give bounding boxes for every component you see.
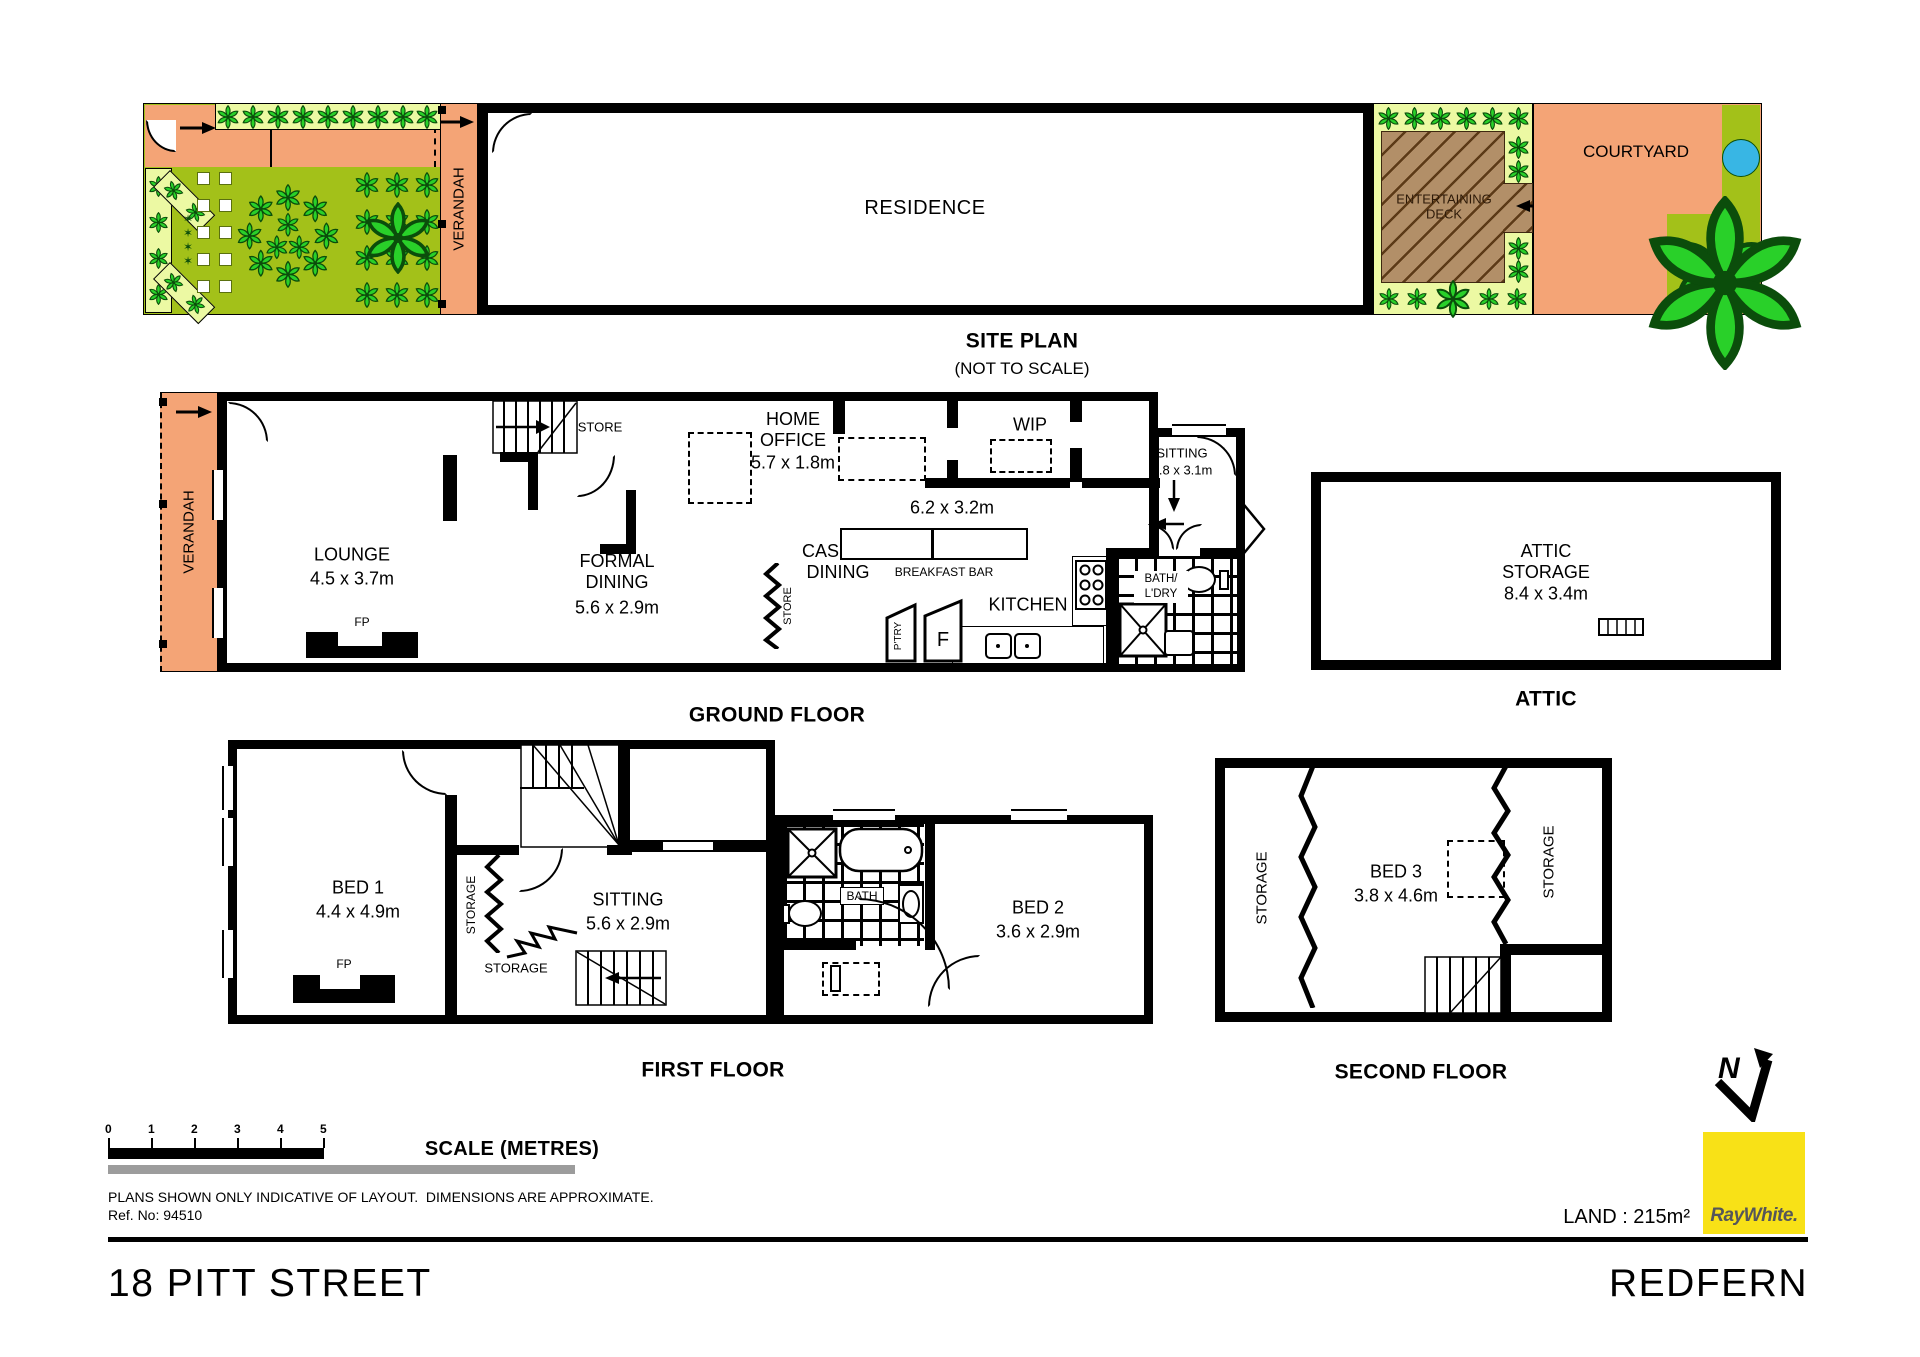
flower-icon xyxy=(1507,160,1530,183)
fireplace-notch xyxy=(338,632,382,646)
storage-label: STORAGE xyxy=(1541,825,1558,898)
verandah-label: VERANDAH xyxy=(451,167,468,250)
window xyxy=(212,588,225,638)
flower-icon xyxy=(1481,107,1504,130)
entry-arrow-icon xyxy=(440,114,474,130)
first-floor-title: FIRST FLOOR xyxy=(641,1059,784,1084)
french-door xyxy=(1238,498,1268,560)
flower-icon xyxy=(1403,107,1426,130)
basin xyxy=(1164,630,1194,656)
fireplace-notch xyxy=(320,975,360,989)
window xyxy=(222,818,235,866)
zigzag-door xyxy=(483,855,505,953)
scale-tick xyxy=(194,1138,196,1148)
flower-icon xyxy=(1507,260,1530,283)
flower-icon xyxy=(414,172,440,198)
wall xyxy=(445,795,457,1024)
flower-icon xyxy=(1377,107,1400,130)
furniture-outline xyxy=(1447,840,1505,898)
storage-label: STORAGE xyxy=(484,960,547,975)
kitchen-label: KITCHEN xyxy=(988,594,1067,615)
verandah-label: VERANDAH xyxy=(181,490,198,573)
flower-icon xyxy=(366,105,390,129)
scale-bar xyxy=(108,1148,324,1159)
path-arrow-icon xyxy=(1152,516,1184,532)
planter-strip xyxy=(215,103,441,130)
staircase xyxy=(1424,956,1502,1014)
site-plan-title: SITE PLAN xyxy=(966,330,1078,355)
furniture-outline xyxy=(688,432,752,504)
furniture-outline xyxy=(990,439,1052,473)
raywhite-logo-text: RayWhite. xyxy=(1703,1205,1805,1227)
formal-dining-label: FORMAL DINING xyxy=(567,551,667,593)
flower-wreath xyxy=(232,180,344,292)
attic-storage-label: ATTIC STORAGE xyxy=(1486,541,1606,583)
flower-icon xyxy=(1455,107,1478,130)
flower-icon xyxy=(415,105,439,129)
zigzag-wall xyxy=(1297,766,1319,1008)
floor-plan-page: ✶✶✶✶ VERANDAH RESIDENCE xyxy=(0,0,1920,1357)
ground-floor-title: GROUND FLOOR xyxy=(689,704,865,729)
flower-icon xyxy=(341,105,365,129)
flower-icon xyxy=(384,172,410,198)
toilet-tank xyxy=(782,904,790,924)
post xyxy=(438,106,446,114)
divider xyxy=(108,1165,575,1174)
bed3-label: BED 3 xyxy=(1370,861,1422,882)
wall xyxy=(1106,548,1116,666)
wall xyxy=(925,478,1070,488)
bed2-label: BED 2 xyxy=(1012,897,1064,918)
flower-icon xyxy=(1478,288,1500,310)
flower-icon xyxy=(384,282,410,308)
appliance xyxy=(830,965,841,992)
wall xyxy=(784,940,856,950)
shower xyxy=(1118,602,1168,658)
breakfast-bar xyxy=(840,528,1028,560)
flower-icon xyxy=(1429,107,1452,130)
suburb: REDFERN xyxy=(1400,1262,1808,1306)
post xyxy=(159,640,167,648)
bed2-dims: 3.6 x 2.9m xyxy=(996,921,1080,942)
wall xyxy=(1200,548,1237,558)
bed1-label: BED 1 xyxy=(332,877,384,898)
store-label: STORE xyxy=(578,419,623,434)
bathtub xyxy=(838,827,924,873)
wall xyxy=(947,396,958,428)
raywhite-logo: RayWhite. xyxy=(1703,1132,1805,1234)
scale-tick-label: 4 xyxy=(277,1122,284,1136)
wall xyxy=(1070,448,1082,482)
window xyxy=(833,809,895,822)
home-office-dims: 5.7 x 1.8m xyxy=(751,452,835,473)
window xyxy=(212,470,225,520)
attic-storage-dims: 8.4 x 3.4m xyxy=(1504,583,1588,604)
scale-tick xyxy=(151,1138,153,1148)
flower-icon xyxy=(354,282,380,308)
deck-label: ENTERTAINING DECK xyxy=(1392,192,1496,223)
land-size: LAND : 215m² xyxy=(1460,1206,1690,1229)
second-floor-title: SECOND FLOOR xyxy=(1335,1061,1508,1086)
flower-icon xyxy=(291,105,315,129)
flower-icon xyxy=(148,212,169,233)
kitchen-sink xyxy=(984,631,1042,661)
toilet xyxy=(788,900,822,927)
bath-laundry-line1: BATH/ xyxy=(1134,572,1188,587)
reference-number: Ref. No: 94510 xyxy=(108,1207,202,1223)
lounge-dims: 4.5 x 3.7m xyxy=(310,568,394,589)
flower-icon xyxy=(391,105,415,129)
flower-icon xyxy=(1507,237,1530,260)
store-label: STORE xyxy=(782,587,794,625)
wall xyxy=(1070,396,1082,422)
wall xyxy=(1110,548,1150,558)
scale-tick xyxy=(237,1138,239,1148)
wip-label: WIP xyxy=(1013,414,1047,435)
fridge: F xyxy=(922,598,964,664)
bed1-dims: 4.4 x 4.9m xyxy=(316,901,400,922)
shower xyxy=(786,827,838,879)
window xyxy=(222,930,235,978)
scale-tick xyxy=(108,1138,110,1148)
wall xyxy=(1082,478,1160,488)
flower-icon xyxy=(1507,136,1530,159)
lounge-label: LOUNGE xyxy=(314,544,390,565)
sitting-label: SITTING xyxy=(593,889,664,910)
sitting-dims: 5.6 x 2.9m xyxy=(586,913,670,934)
site-plan-subtitle: (NOT TO SCALE) xyxy=(954,359,1089,379)
wall xyxy=(1500,944,1612,955)
stepping-stones xyxy=(197,172,232,293)
pantry-label: P'TRY xyxy=(893,621,904,650)
flower-icon xyxy=(1378,288,1400,310)
flower-icon xyxy=(266,105,290,129)
toilet-tank xyxy=(1219,570,1229,590)
staircase xyxy=(520,744,622,848)
bath-laundry-line2: L'DRY xyxy=(1134,587,1188,602)
zigzag-door xyxy=(505,925,581,961)
storage-label: STORAGE xyxy=(464,876,478,934)
large-flower-icon xyxy=(1638,196,1812,370)
staircase xyxy=(575,950,667,1006)
disclaimer: PLANS SHOWN ONLY INDICATIVE OF LAYOUT. D… xyxy=(108,1189,654,1205)
bath-laundry-label: BATH/ L'DRY xyxy=(1134,571,1188,603)
post xyxy=(438,220,446,228)
north-arrow-icon: N xyxy=(1710,1046,1782,1122)
flower-icon xyxy=(354,172,380,198)
window xyxy=(1172,424,1226,437)
wall xyxy=(626,490,636,552)
breakfast-bar-label: BREAKFAST BAR xyxy=(895,565,993,579)
wall xyxy=(528,452,538,510)
zigzag-door xyxy=(762,563,782,649)
flower-icon xyxy=(1406,288,1428,310)
flower-icon xyxy=(316,105,340,129)
scale-tick-label: 1 xyxy=(148,1122,155,1136)
post xyxy=(159,398,167,406)
bed3-dims: 3.8 x 4.6m xyxy=(1354,885,1438,906)
window xyxy=(663,840,713,852)
fireplace-label: FP xyxy=(336,957,351,971)
scale-tick-label: 2 xyxy=(191,1122,198,1136)
wall xyxy=(931,528,934,560)
fridge-label: F xyxy=(937,629,949,651)
window xyxy=(1011,809,1067,822)
scale-title: SCALE (METRES) xyxy=(425,1138,599,1162)
scale-tick xyxy=(323,1138,325,1148)
window xyxy=(222,766,235,810)
fireplace-label: FP xyxy=(354,615,369,629)
scale-tick-label: 5 xyxy=(320,1122,327,1136)
path-arrow-icon xyxy=(1166,480,1182,512)
wall xyxy=(618,744,630,852)
scale-tick xyxy=(280,1138,282,1148)
flower-icon xyxy=(216,105,240,129)
kitchen-area-dims: 6.2 x 3.2m xyxy=(910,497,994,518)
post xyxy=(438,300,446,308)
water-feature xyxy=(1722,139,1760,177)
residence-label: RESIDENCE xyxy=(864,197,985,221)
plant-icon: ✶✶✶✶ xyxy=(180,212,196,268)
boundary-dashed xyxy=(434,127,436,167)
flower-icon xyxy=(1506,288,1528,310)
wall xyxy=(443,455,457,521)
street-address: 18 PITT STREET xyxy=(108,1262,432,1306)
flower-icon xyxy=(241,105,265,129)
staircase xyxy=(492,400,578,454)
pantry-cupboard: P'TRY xyxy=(884,602,918,664)
attic-title: ATTIC xyxy=(1515,688,1577,713)
entry-arrow-icon xyxy=(176,404,212,420)
flower-icon xyxy=(1507,107,1530,130)
wall xyxy=(457,845,519,855)
scale-tick-label: 3 xyxy=(234,1122,241,1136)
post xyxy=(159,500,167,508)
planter-strip xyxy=(1375,105,1531,131)
flower-icon xyxy=(1434,280,1472,318)
home-office-label: HOME OFFICE xyxy=(738,409,848,451)
flower-icon xyxy=(414,282,440,308)
ladder-icon xyxy=(1598,618,1644,636)
large-flower-icon xyxy=(362,202,434,274)
formal-dining-dims: 5.6 x 2.9m xyxy=(575,597,659,618)
courtyard-label: COURTYARD xyxy=(1583,142,1689,162)
scale-tick-label: 0 xyxy=(105,1122,112,1136)
cooktop xyxy=(1075,560,1107,610)
furniture-outline xyxy=(838,437,926,481)
storage-label: STORAGE xyxy=(1254,851,1271,924)
rule xyxy=(108,1237,1808,1242)
planter-strip xyxy=(1375,283,1531,314)
wall xyxy=(607,845,632,855)
entry-arrow-icon xyxy=(180,120,216,136)
